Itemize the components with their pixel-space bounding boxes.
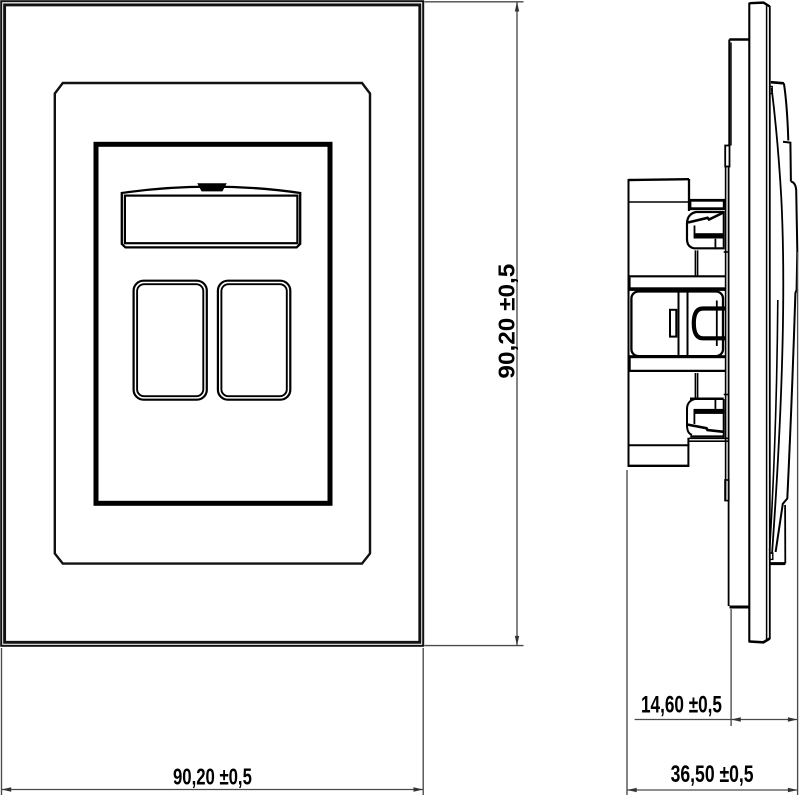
- svg-text:90,20 ±0,5: 90,20 ±0,5: [173, 765, 252, 790]
- svg-text:90,20 ±0,5: 90,20 ±0,5: [494, 264, 521, 379]
- svg-text:36,50 ±0,5: 36,50 ±0,5: [671, 761, 754, 787]
- svg-text:14,60 ±0,5: 14,60 ±0,5: [641, 692, 722, 718]
